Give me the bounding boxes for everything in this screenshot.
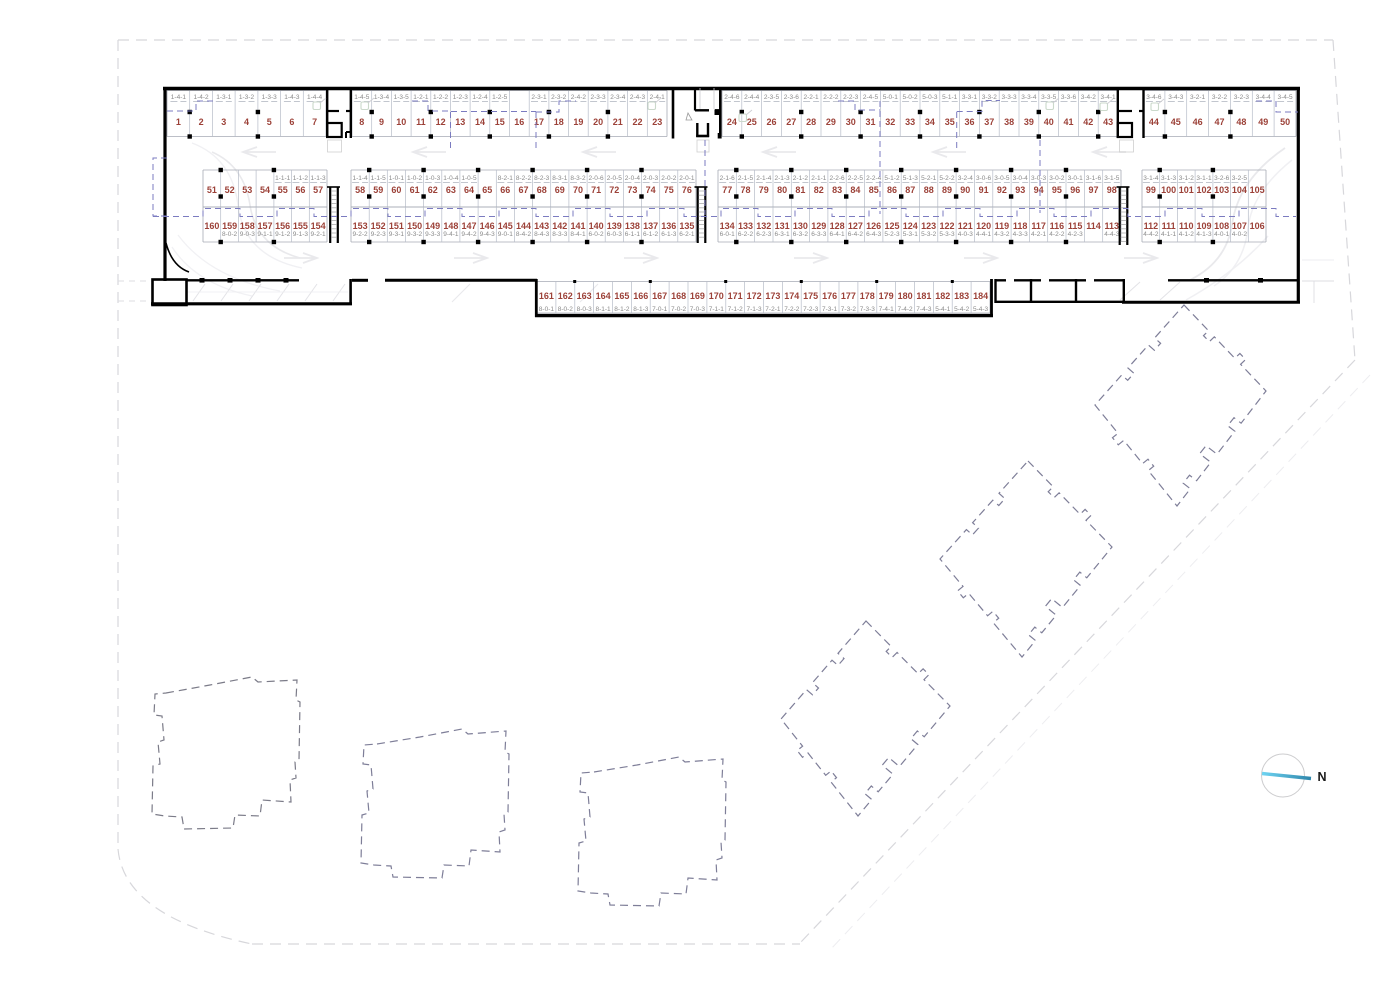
svg-text:3-1-6: 3-1-6 bbox=[1086, 175, 1102, 182]
svg-text:5-3-3: 5-3-3 bbox=[939, 231, 955, 238]
svg-text:42: 42 bbox=[1083, 117, 1093, 127]
svg-text:32: 32 bbox=[885, 117, 895, 127]
svg-text:5-1-3: 5-1-3 bbox=[903, 175, 919, 182]
svg-text:120: 120 bbox=[976, 221, 991, 231]
svg-text:7-3-3: 7-3-3 bbox=[860, 306, 876, 313]
svg-text:5-3-1: 5-3-1 bbox=[903, 231, 919, 238]
svg-text:153: 153 bbox=[353, 221, 368, 231]
svg-text:2-4-1: 2-4-1 bbox=[650, 94, 666, 101]
svg-text:2-2-4: 2-2-4 bbox=[866, 175, 882, 182]
svg-text:8-1-1: 8-1-1 bbox=[596, 306, 612, 313]
svg-text:147: 147 bbox=[461, 221, 476, 231]
svg-text:6-1-2: 6-1-2 bbox=[643, 231, 659, 238]
svg-text:107: 107 bbox=[1232, 221, 1247, 231]
svg-text:9-2-3: 9-2-3 bbox=[371, 231, 387, 238]
svg-text:28: 28 bbox=[806, 117, 816, 127]
svg-text:3-2-2: 3-2-2 bbox=[1212, 94, 1228, 101]
svg-text:102: 102 bbox=[1196, 185, 1211, 195]
svg-text:5-1-1: 5-1-1 bbox=[942, 94, 958, 101]
svg-text:137: 137 bbox=[643, 221, 658, 231]
svg-text:58: 58 bbox=[355, 185, 365, 195]
svg-text:4-4-1: 4-4-1 bbox=[976, 231, 992, 238]
svg-text:3-1-2: 3-1-2 bbox=[1179, 175, 1195, 182]
svg-text:2-4-4: 2-4-4 bbox=[744, 94, 760, 101]
svg-text:47: 47 bbox=[1214, 117, 1224, 127]
svg-text:1-0-4: 1-0-4 bbox=[443, 175, 459, 182]
svg-text:5-2-3: 5-2-3 bbox=[884, 231, 900, 238]
svg-text:4-1-2: 4-1-2 bbox=[1179, 231, 1195, 238]
svg-text:105: 105 bbox=[1250, 185, 1265, 195]
svg-text:8-4-2: 8-4-2 bbox=[516, 231, 532, 238]
svg-text:18: 18 bbox=[554, 117, 564, 127]
svg-text:77: 77 bbox=[722, 185, 732, 195]
svg-text:8-0-2: 8-0-2 bbox=[222, 231, 238, 238]
svg-text:8: 8 bbox=[359, 117, 364, 127]
svg-text:177: 177 bbox=[841, 291, 856, 301]
svg-text:44: 44 bbox=[1149, 117, 1159, 127]
svg-text:161: 161 bbox=[539, 291, 554, 301]
svg-text:2-4-5: 2-4-5 bbox=[863, 94, 879, 101]
svg-text:89: 89 bbox=[942, 185, 952, 195]
svg-text:52: 52 bbox=[225, 185, 235, 195]
svg-text:1-2-1: 1-2-1 bbox=[413, 94, 429, 101]
svg-text:3-0-3: 3-0-3 bbox=[1031, 175, 1047, 182]
svg-text:39: 39 bbox=[1024, 117, 1034, 127]
svg-text:127: 127 bbox=[848, 221, 863, 231]
svg-text:145: 145 bbox=[498, 221, 513, 231]
svg-text:61: 61 bbox=[410, 185, 420, 195]
svg-text:1-2-3: 1-2-3 bbox=[453, 94, 469, 101]
svg-text:130: 130 bbox=[793, 221, 808, 231]
svg-text:2-0-3: 2-0-3 bbox=[643, 175, 659, 182]
svg-text:5-2-2: 5-2-2 bbox=[939, 175, 955, 182]
svg-text:9-3-1: 9-3-1 bbox=[389, 231, 405, 238]
svg-text:55: 55 bbox=[278, 185, 288, 195]
svg-text:1-1-4: 1-1-4 bbox=[353, 175, 369, 182]
svg-text:1-1-2: 1-1-2 bbox=[293, 175, 309, 182]
svg-text:12: 12 bbox=[436, 117, 446, 127]
svg-text:8-2-1: 8-2-1 bbox=[498, 175, 514, 182]
svg-text:133: 133 bbox=[738, 221, 753, 231]
svg-text:27: 27 bbox=[786, 117, 796, 127]
svg-text:7-4-1: 7-4-1 bbox=[879, 306, 895, 313]
svg-text:8-4-1: 8-4-1 bbox=[570, 231, 586, 238]
svg-text:2-3-4: 2-3-4 bbox=[610, 94, 626, 101]
svg-text:1-1-3: 1-1-3 bbox=[311, 175, 327, 182]
svg-text:180: 180 bbox=[898, 291, 913, 301]
svg-text:49: 49 bbox=[1258, 117, 1268, 127]
svg-text:75: 75 bbox=[664, 185, 674, 195]
svg-text:54: 54 bbox=[260, 185, 270, 195]
svg-text:37: 37 bbox=[984, 117, 994, 127]
svg-text:3-0-6: 3-0-6 bbox=[976, 175, 992, 182]
svg-text:8-1-2: 8-1-2 bbox=[614, 306, 630, 313]
svg-text:82: 82 bbox=[814, 185, 824, 195]
svg-text:160: 160 bbox=[204, 221, 219, 231]
svg-text:3-4-4: 3-4-4 bbox=[1256, 94, 1272, 101]
svg-text:62: 62 bbox=[428, 185, 438, 195]
svg-text:5-2-1: 5-2-1 bbox=[921, 175, 937, 182]
svg-text:33: 33 bbox=[905, 117, 915, 127]
svg-text:149: 149 bbox=[425, 221, 440, 231]
svg-text:3-4-3: 3-4-3 bbox=[1168, 94, 1184, 101]
svg-text:60: 60 bbox=[391, 185, 401, 195]
svg-text:2-0-1: 2-0-1 bbox=[679, 175, 695, 182]
svg-text:1-2-5: 1-2-5 bbox=[492, 94, 508, 101]
svg-text:2-2-5: 2-2-5 bbox=[848, 175, 864, 182]
svg-text:2-2-2: 2-2-2 bbox=[823, 94, 839, 101]
svg-text:84: 84 bbox=[850, 185, 860, 195]
svg-text:5-0-2: 5-0-2 bbox=[903, 94, 919, 101]
svg-text:119: 119 bbox=[995, 221, 1010, 231]
svg-text:92: 92 bbox=[997, 185, 1007, 195]
svg-text:26: 26 bbox=[766, 117, 776, 127]
svg-text:156: 156 bbox=[275, 221, 290, 231]
svg-text:5-1-2: 5-1-2 bbox=[884, 175, 900, 182]
svg-text:3-1-3: 3-1-3 bbox=[1161, 175, 1177, 182]
svg-text:174: 174 bbox=[784, 291, 799, 301]
svg-text:158: 158 bbox=[240, 221, 255, 231]
svg-text:7-0-1: 7-0-1 bbox=[652, 306, 668, 313]
svg-text:87: 87 bbox=[905, 185, 915, 195]
svg-text:69: 69 bbox=[555, 185, 565, 195]
svg-text:3-1-4: 3-1-4 bbox=[1143, 175, 1159, 182]
svg-text:4-2-1: 4-2-1 bbox=[1031, 231, 1047, 238]
svg-text:173: 173 bbox=[765, 291, 780, 301]
svg-text:48: 48 bbox=[1236, 117, 1246, 127]
svg-text:63: 63 bbox=[446, 185, 456, 195]
svg-text:7-4-2: 7-4-2 bbox=[898, 306, 914, 313]
svg-text:57: 57 bbox=[313, 185, 323, 195]
svg-text:36: 36 bbox=[964, 117, 974, 127]
svg-text:7-3-1: 7-3-1 bbox=[822, 306, 838, 313]
svg-text:66: 66 bbox=[500, 185, 510, 195]
svg-text:8-3-3: 8-3-3 bbox=[552, 231, 568, 238]
svg-text:6-0-2: 6-0-2 bbox=[589, 231, 605, 238]
svg-text:1-3-3: 1-3-3 bbox=[262, 94, 278, 101]
svg-text:8-0-1: 8-0-1 bbox=[539, 306, 555, 313]
svg-text:88: 88 bbox=[924, 185, 934, 195]
svg-text:9-3-2: 9-3-2 bbox=[407, 231, 423, 238]
svg-text:6-2-1: 6-2-1 bbox=[679, 231, 695, 238]
svg-text:2-0-4: 2-0-4 bbox=[625, 175, 641, 182]
svg-text:5-0-1: 5-0-1 bbox=[883, 94, 899, 101]
svg-text:169: 169 bbox=[690, 291, 705, 301]
svg-text:109: 109 bbox=[1196, 221, 1211, 231]
svg-text:79: 79 bbox=[759, 185, 769, 195]
svg-text:9-4-3: 9-4-3 bbox=[480, 231, 496, 238]
svg-text:1-3-4: 1-3-4 bbox=[374, 94, 390, 101]
svg-text:74: 74 bbox=[646, 185, 656, 195]
svg-text:5: 5 bbox=[267, 117, 272, 127]
svg-text:3-1-5: 3-1-5 bbox=[1104, 175, 1120, 182]
svg-text:3-2-1: 3-2-1 bbox=[1190, 94, 1206, 101]
svg-text:4-1-3: 4-1-3 bbox=[1196, 231, 1212, 238]
svg-text:108: 108 bbox=[1214, 221, 1229, 231]
svg-text:8-4-3: 8-4-3 bbox=[534, 231, 550, 238]
svg-text:5-3-2: 5-3-2 bbox=[921, 231, 937, 238]
svg-text:6-4-2: 6-4-2 bbox=[848, 231, 864, 238]
svg-text:179: 179 bbox=[879, 291, 894, 301]
svg-text:41: 41 bbox=[1063, 117, 1073, 127]
svg-text:N: N bbox=[1317, 770, 1326, 784]
svg-text:7-2-2: 7-2-2 bbox=[784, 306, 800, 313]
svg-text:6-0-1: 6-0-1 bbox=[720, 231, 736, 238]
svg-text:6-1-1: 6-1-1 bbox=[625, 231, 641, 238]
svg-text:135: 135 bbox=[679, 221, 694, 231]
svg-text:6-2-3: 6-2-3 bbox=[756, 231, 772, 238]
svg-text:182: 182 bbox=[935, 291, 950, 301]
svg-text:34: 34 bbox=[925, 117, 935, 127]
svg-text:1-0-5: 1-0-5 bbox=[461, 175, 477, 182]
svg-text:155: 155 bbox=[293, 221, 308, 231]
svg-text:97: 97 bbox=[1088, 185, 1098, 195]
svg-text:9: 9 bbox=[379, 117, 384, 127]
svg-text:2-3-2: 2-3-2 bbox=[551, 94, 567, 101]
svg-text:7: 7 bbox=[312, 117, 317, 127]
svg-text:2-3-6: 2-3-6 bbox=[784, 94, 800, 101]
svg-text:9-4-1: 9-4-1 bbox=[443, 231, 459, 238]
svg-text:8-2-3: 8-2-3 bbox=[534, 175, 550, 182]
svg-text:1-3-1: 1-3-1 bbox=[216, 94, 232, 101]
svg-text:6-1-3: 6-1-3 bbox=[661, 231, 677, 238]
svg-text:4-4-2: 4-4-2 bbox=[1143, 231, 1159, 238]
svg-text:8-1-3: 8-1-3 bbox=[633, 306, 649, 313]
svg-text:90: 90 bbox=[960, 185, 970, 195]
svg-text:76: 76 bbox=[682, 185, 692, 195]
svg-text:72: 72 bbox=[609, 185, 619, 195]
svg-text:9-0-1: 9-0-1 bbox=[498, 231, 514, 238]
svg-text:2-1-4: 2-1-4 bbox=[756, 175, 772, 182]
svg-text:176: 176 bbox=[822, 291, 837, 301]
svg-text:45: 45 bbox=[1171, 117, 1181, 127]
svg-text:114: 114 bbox=[1086, 221, 1101, 231]
svg-text:129: 129 bbox=[811, 221, 826, 231]
svg-text:1-4-4: 1-4-4 bbox=[307, 94, 323, 101]
svg-text:86: 86 bbox=[887, 185, 897, 195]
svg-text:2-1-2: 2-1-2 bbox=[793, 175, 809, 182]
svg-text:1-0-2: 1-0-2 bbox=[407, 175, 423, 182]
svg-text:165: 165 bbox=[614, 291, 629, 301]
svg-text:152: 152 bbox=[371, 221, 386, 231]
svg-text:159: 159 bbox=[222, 221, 237, 231]
svg-text:1-2-2: 1-2-2 bbox=[433, 94, 449, 101]
svg-text:31: 31 bbox=[865, 117, 875, 127]
svg-text:113: 113 bbox=[1105, 221, 1120, 231]
svg-text:143: 143 bbox=[534, 221, 549, 231]
svg-text:115: 115 bbox=[1068, 221, 1083, 231]
svg-text:1-2-4: 1-2-4 bbox=[472, 94, 488, 101]
svg-text:141: 141 bbox=[570, 221, 585, 231]
svg-text:29: 29 bbox=[826, 117, 836, 127]
svg-text:2-4-6: 2-4-6 bbox=[724, 94, 740, 101]
svg-text:8-2-2: 8-2-2 bbox=[516, 175, 532, 182]
svg-text:30: 30 bbox=[846, 117, 856, 127]
svg-text:4-0-3: 4-0-3 bbox=[958, 231, 974, 238]
svg-text:167: 167 bbox=[652, 291, 667, 301]
svg-text:83: 83 bbox=[832, 185, 842, 195]
svg-text:1-1-5: 1-1-5 bbox=[371, 175, 387, 182]
svg-text:2-4-2: 2-4-2 bbox=[571, 94, 587, 101]
svg-text:6-3-1: 6-3-1 bbox=[775, 231, 791, 238]
svg-text:8-3-1: 8-3-1 bbox=[552, 175, 568, 182]
svg-text:3: 3 bbox=[221, 117, 226, 127]
svg-text:7-1-2: 7-1-2 bbox=[728, 306, 744, 313]
svg-text:178: 178 bbox=[860, 291, 875, 301]
svg-text:110: 110 bbox=[1179, 221, 1194, 231]
svg-text:7-4-3: 7-4-3 bbox=[916, 306, 932, 313]
svg-text:93: 93 bbox=[1015, 185, 1025, 195]
svg-text:11: 11 bbox=[416, 117, 426, 127]
svg-text:5-0-3: 5-0-3 bbox=[922, 94, 938, 101]
svg-text:98: 98 bbox=[1107, 185, 1117, 195]
svg-text:65: 65 bbox=[482, 185, 492, 195]
svg-text:6-3-2: 6-3-2 bbox=[793, 231, 809, 238]
svg-text:1-3-2: 1-3-2 bbox=[239, 94, 255, 101]
svg-text:4-2-2: 4-2-2 bbox=[1049, 231, 1065, 238]
svg-text:3-3-1: 3-3-1 bbox=[962, 94, 978, 101]
svg-text:7-2-1: 7-2-1 bbox=[765, 306, 781, 313]
svg-text:3-3-3: 3-3-3 bbox=[1002, 94, 1018, 101]
svg-text:13: 13 bbox=[455, 117, 465, 127]
svg-text:85: 85 bbox=[869, 185, 879, 195]
svg-text:5-4-2: 5-4-2 bbox=[954, 306, 970, 313]
svg-text:7-3-2: 7-3-2 bbox=[841, 306, 857, 313]
svg-text:175: 175 bbox=[803, 291, 818, 301]
svg-text:10: 10 bbox=[396, 117, 406, 127]
svg-text:3-1-1: 3-1-1 bbox=[1196, 175, 1212, 182]
svg-text:1-0-1: 1-0-1 bbox=[389, 175, 405, 182]
svg-text:59: 59 bbox=[373, 185, 383, 195]
svg-text:1-4-1: 1-4-1 bbox=[171, 94, 187, 101]
svg-text:122: 122 bbox=[939, 221, 954, 231]
svg-text:1-3-5: 1-3-5 bbox=[394, 94, 410, 101]
svg-text:3-3-5: 3-3-5 bbox=[1041, 94, 1057, 101]
svg-text:8-0-2: 8-0-2 bbox=[558, 306, 574, 313]
svg-text:3-0-2: 3-0-2 bbox=[1049, 175, 1065, 182]
svg-text:9-4-2: 9-4-2 bbox=[461, 231, 477, 238]
svg-text:101: 101 bbox=[1179, 185, 1194, 195]
svg-text:22: 22 bbox=[632, 117, 642, 127]
svg-text:9-2-2: 9-2-2 bbox=[353, 231, 369, 238]
svg-text:2: 2 bbox=[199, 117, 204, 127]
svg-text:128: 128 bbox=[830, 221, 845, 231]
svg-text:1-4-3: 1-4-3 bbox=[284, 94, 300, 101]
svg-text:2-1-6: 2-1-6 bbox=[720, 175, 736, 182]
svg-text:3-0-4: 3-0-4 bbox=[1013, 175, 1029, 182]
svg-text:9-0-3: 9-0-3 bbox=[240, 231, 256, 238]
svg-text:35: 35 bbox=[945, 117, 955, 127]
svg-text:91: 91 bbox=[979, 185, 989, 195]
svg-text:73: 73 bbox=[627, 185, 637, 195]
svg-text:3-0-5: 3-0-5 bbox=[994, 175, 1010, 182]
svg-text:154: 154 bbox=[311, 221, 326, 231]
svg-text:117: 117 bbox=[1031, 221, 1046, 231]
svg-text:166: 166 bbox=[633, 291, 648, 301]
svg-text:50: 50 bbox=[1280, 117, 1290, 127]
svg-text:70: 70 bbox=[573, 185, 583, 195]
svg-text:2-2-3: 2-2-3 bbox=[843, 94, 859, 101]
svg-text:9-1-1: 9-1-1 bbox=[257, 231, 273, 238]
svg-text:121: 121 bbox=[958, 221, 973, 231]
svg-text:172: 172 bbox=[747, 291, 762, 301]
svg-text:4-3-2: 4-3-2 bbox=[994, 231, 1010, 238]
svg-text:6-3-3: 6-3-3 bbox=[811, 231, 827, 238]
svg-text:3-2-6: 3-2-6 bbox=[1214, 175, 1230, 182]
svg-text:3-0-1: 3-0-1 bbox=[1068, 175, 1084, 182]
svg-text:3-4-5: 3-4-5 bbox=[1278, 94, 1294, 101]
svg-text:2-2-6: 2-2-6 bbox=[830, 175, 846, 182]
svg-text:112: 112 bbox=[1144, 221, 1159, 231]
svg-text:3-2-3: 3-2-3 bbox=[1234, 94, 1250, 101]
svg-text:116: 116 bbox=[1050, 221, 1065, 231]
svg-text:43: 43 bbox=[1103, 117, 1113, 127]
svg-text:25: 25 bbox=[747, 117, 757, 127]
svg-text:3-4-6: 3-4-6 bbox=[1146, 94, 1162, 101]
svg-text:3-3-6: 3-3-6 bbox=[1061, 94, 1077, 101]
svg-text:1-4-5: 1-4-5 bbox=[354, 94, 370, 101]
svg-text:53: 53 bbox=[242, 185, 252, 195]
svg-text:7-0-2: 7-0-2 bbox=[671, 306, 687, 313]
svg-text:96: 96 bbox=[1070, 185, 1080, 195]
svg-text:2-4-3: 2-4-3 bbox=[630, 94, 646, 101]
svg-text:146: 146 bbox=[480, 221, 495, 231]
svg-text:125: 125 bbox=[884, 221, 899, 231]
svg-text:2-3-5: 2-3-5 bbox=[764, 94, 780, 101]
svg-text:138: 138 bbox=[625, 221, 640, 231]
svg-text:4-1-1: 4-1-1 bbox=[1161, 231, 1177, 238]
svg-text:151: 151 bbox=[389, 221, 404, 231]
svg-text:2-1-3: 2-1-3 bbox=[775, 175, 791, 182]
svg-text:2-2-1: 2-2-1 bbox=[804, 94, 820, 101]
svg-text:136: 136 bbox=[661, 221, 676, 231]
svg-text:171: 171 bbox=[728, 291, 743, 301]
svg-text:4: 4 bbox=[244, 117, 249, 127]
svg-text:5-4-1: 5-4-1 bbox=[935, 306, 951, 313]
svg-text:163: 163 bbox=[577, 291, 592, 301]
svg-text:3-2-4: 3-2-4 bbox=[958, 175, 974, 182]
svg-text:1-1-1: 1-1-1 bbox=[275, 175, 291, 182]
svg-text:6: 6 bbox=[289, 117, 294, 127]
svg-text:181: 181 bbox=[916, 291, 931, 301]
svg-text:7-1-3: 7-1-3 bbox=[747, 306, 763, 313]
svg-text:111: 111 bbox=[1162, 221, 1176, 231]
svg-text:17: 17 bbox=[534, 117, 544, 127]
svg-text:103: 103 bbox=[1214, 185, 1229, 195]
svg-text:6-2-2: 6-2-2 bbox=[738, 231, 754, 238]
svg-text:94: 94 bbox=[1034, 185, 1044, 195]
svg-text:68: 68 bbox=[537, 185, 547, 195]
svg-text:71: 71 bbox=[591, 185, 601, 195]
svg-text:140: 140 bbox=[589, 221, 604, 231]
svg-text:150: 150 bbox=[407, 221, 422, 231]
svg-text:164: 164 bbox=[596, 291, 611, 301]
svg-text:157: 157 bbox=[257, 221, 272, 231]
svg-text:6-0-3: 6-0-3 bbox=[607, 231, 623, 238]
svg-text:184: 184 bbox=[973, 291, 988, 301]
svg-text:144: 144 bbox=[516, 221, 531, 231]
svg-text:3-4-1: 3-4-1 bbox=[1101, 94, 1117, 101]
svg-text:162: 162 bbox=[558, 291, 573, 301]
svg-text:142: 142 bbox=[552, 221, 567, 231]
svg-text:4-0-1: 4-0-1 bbox=[1214, 231, 1230, 238]
svg-text:9-3-3: 9-3-3 bbox=[425, 231, 441, 238]
svg-text:2-0-2: 2-0-2 bbox=[661, 175, 677, 182]
svg-text:9-1-2: 9-1-2 bbox=[275, 231, 291, 238]
svg-text:38: 38 bbox=[1004, 117, 1014, 127]
svg-text:124: 124 bbox=[903, 221, 918, 231]
svg-text:67: 67 bbox=[518, 185, 528, 195]
